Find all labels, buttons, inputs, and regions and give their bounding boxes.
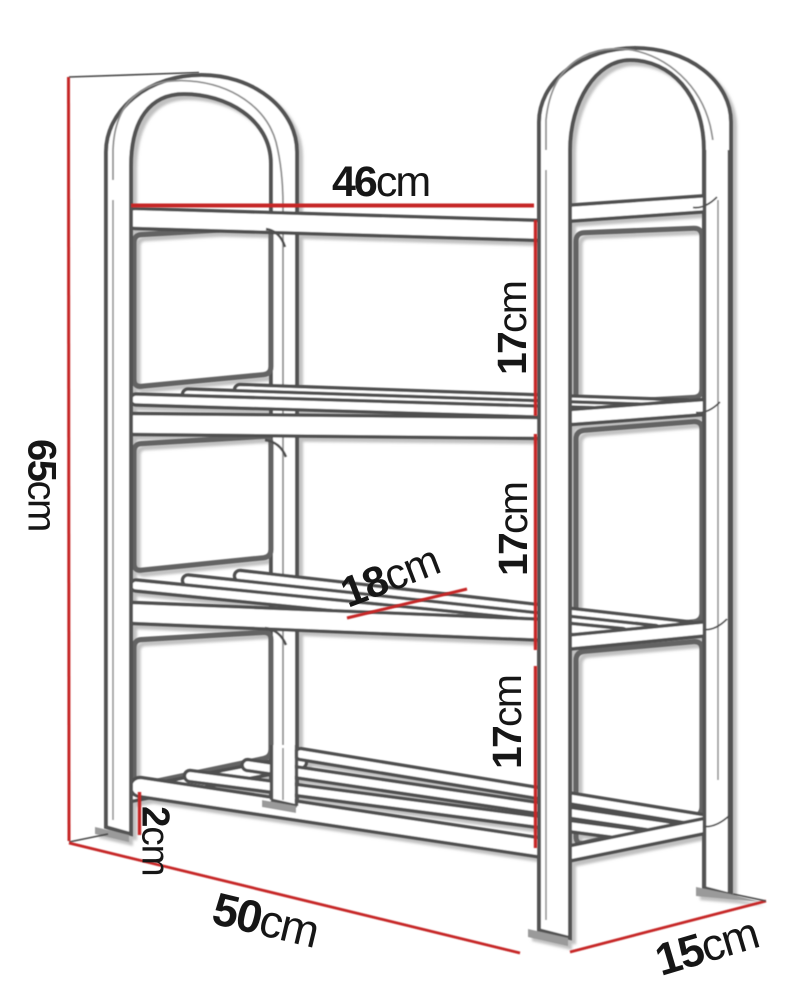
svg-text:46cm: 46cm: [332, 158, 429, 206]
svg-text:65cm: 65cm: [20, 439, 64, 531]
svg-text:17cm: 17cm: [484, 676, 530, 769]
svg-text:17cm: 17cm: [490, 483, 536, 576]
svg-text:2cm: 2cm: [134, 806, 177, 876]
svg-text:17cm: 17cm: [489, 282, 535, 375]
